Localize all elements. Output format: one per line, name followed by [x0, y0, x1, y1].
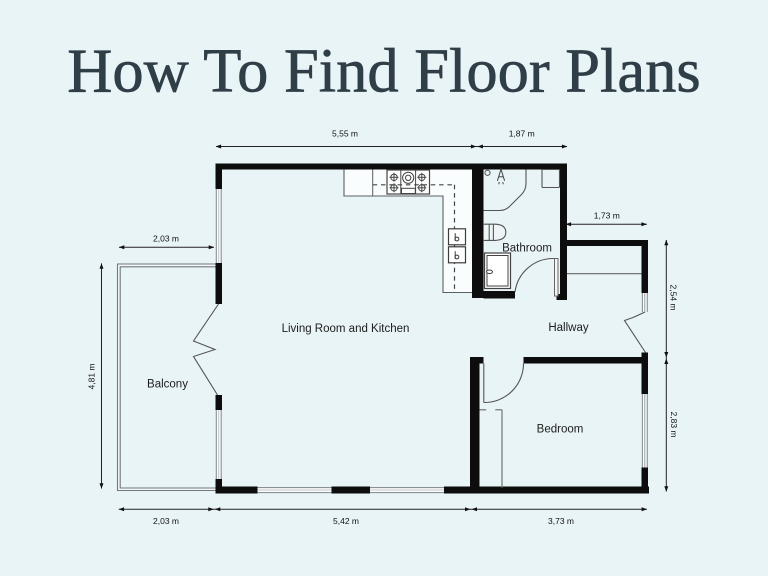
svg-text:5,42 m: 5,42 m [333, 516, 359, 526]
svg-text:1,87 m: 1,87 m [509, 129, 535, 139]
svg-text:5,55 m: 5,55 m [332, 129, 358, 139]
svg-text:2,03 m: 2,03 m [153, 516, 179, 526]
svg-text:Balcony: Balcony [147, 379, 188, 391]
svg-text:1,73 m: 1,73 m [594, 211, 620, 221]
svg-text:2,54 m: 2,54 m [669, 285, 679, 311]
svg-text:2,83 m: 2,83 m [669, 412, 679, 438]
svg-text:Living Room and Kitchen: Living Room and Kitchen [282, 323, 410, 335]
svg-text:2,03 m: 2,03 m [153, 234, 179, 244]
svg-text:Bedroom: Bedroom [537, 424, 584, 436]
svg-text:3,73 m: 3,73 m [548, 516, 574, 526]
svg-text:Hallway: Hallway [548, 322, 589, 334]
svg-text:4,81 m: 4,81 m [87, 364, 97, 390]
svg-text:Bathroom: Bathroom [502, 243, 552, 255]
svg-text:How To Find Floor Plans: How To Find Floor Plans [67, 36, 700, 106]
